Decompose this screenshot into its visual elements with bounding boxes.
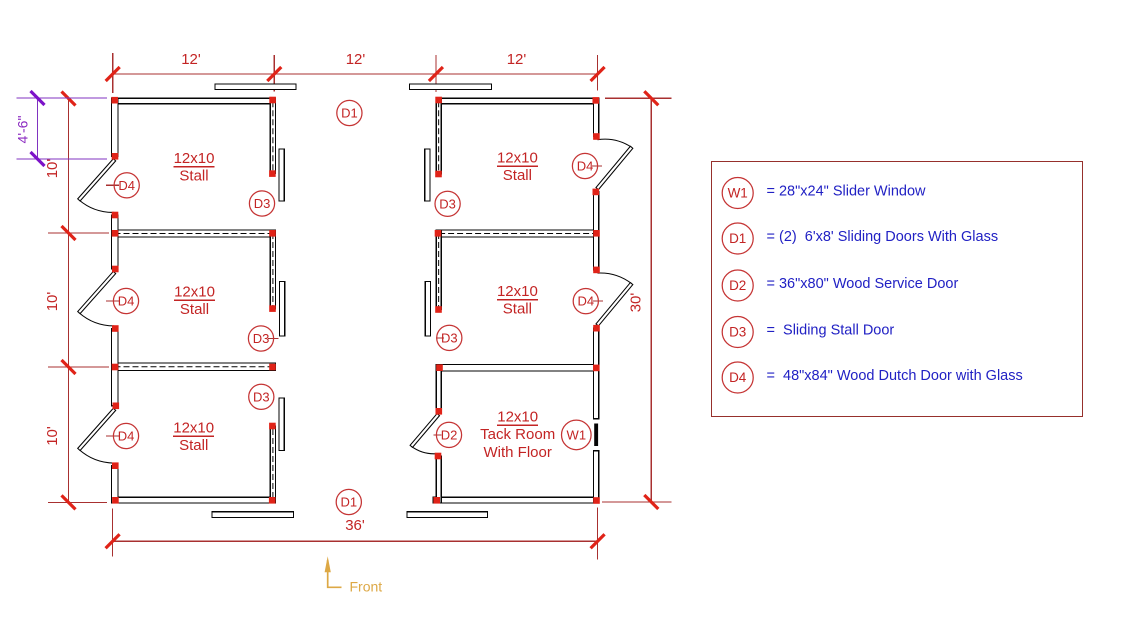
svg-text:W1: W1 — [728, 186, 748, 201]
svg-text:4'-6": 4'-6" — [15, 116, 31, 144]
svg-text:W1: W1 — [567, 427, 587, 442]
svg-text:12': 12' — [181, 51, 201, 68]
svg-text:D1: D1 — [729, 231, 746, 246]
svg-text:D2: D2 — [729, 278, 746, 293]
svg-text:Tack Room: Tack Room — [480, 426, 555, 443]
svg-text:D4: D4 — [118, 294, 135, 309]
svg-text:Front: Front — [350, 579, 383, 595]
svg-text:12x10: 12x10 — [174, 283, 215, 300]
svg-text:D2: D2 — [441, 427, 458, 442]
svg-text:D4: D4 — [577, 294, 594, 309]
svg-text:12x10: 12x10 — [173, 419, 214, 436]
svg-text:D4: D4 — [118, 429, 135, 444]
svg-text:Stall: Stall — [180, 301, 209, 318]
svg-text:10': 10' — [44, 426, 61, 446]
svg-text:D3: D3 — [439, 196, 456, 211]
svg-text:D4: D4 — [118, 178, 135, 193]
svg-text:D1: D1 — [341, 106, 358, 121]
svg-text:D3: D3 — [729, 325, 746, 340]
svg-text:= 28"x24" Slider Window: = 28"x24" Slider Window — [767, 183, 927, 199]
svg-text:D3: D3 — [441, 330, 458, 345]
svg-text:10': 10' — [44, 159, 61, 179]
svg-text:Stall: Stall — [503, 167, 532, 184]
svg-text:Stall: Stall — [179, 437, 208, 454]
svg-text:D1: D1 — [340, 495, 357, 510]
svg-text:D3: D3 — [254, 196, 271, 211]
svg-text:With Floor: With Floor — [484, 444, 552, 461]
svg-text:= (2) 6'x8' Sliding Doors Wit: = (2) 6'x8' Sliding Doors With Glass — [767, 229, 999, 245]
svg-text:= Sliding Stall Door: = Sliding Stall Door — [767, 322, 895, 338]
svg-text:10': 10' — [44, 292, 61, 312]
svg-text:Stall: Stall — [179, 168, 208, 185]
svg-text:30': 30' — [628, 293, 645, 313]
svg-text:12x10: 12x10 — [497, 408, 538, 425]
svg-text:12x10: 12x10 — [497, 283, 538, 300]
svg-text:= 36"x80" Wood Service Door: = 36"x80" Wood Service Door — [767, 276, 959, 292]
svg-text:12': 12' — [507, 51, 527, 68]
svg-text:D3: D3 — [253, 331, 270, 346]
svg-text:D3: D3 — [253, 389, 270, 404]
svg-text:= 48"x84" Wood Dutch Door wit: = 48"x84" Wood Dutch Door with Glass — [767, 368, 1023, 384]
svg-text:12': 12' — [346, 51, 366, 68]
svg-text:Stall: Stall — [503, 301, 532, 318]
svg-text:36': 36' — [345, 517, 365, 534]
svg-text:D4: D4 — [577, 159, 594, 174]
svg-text:12x10: 12x10 — [174, 150, 215, 167]
svg-text:D4: D4 — [729, 370, 747, 385]
svg-text:12x10: 12x10 — [497, 149, 538, 166]
